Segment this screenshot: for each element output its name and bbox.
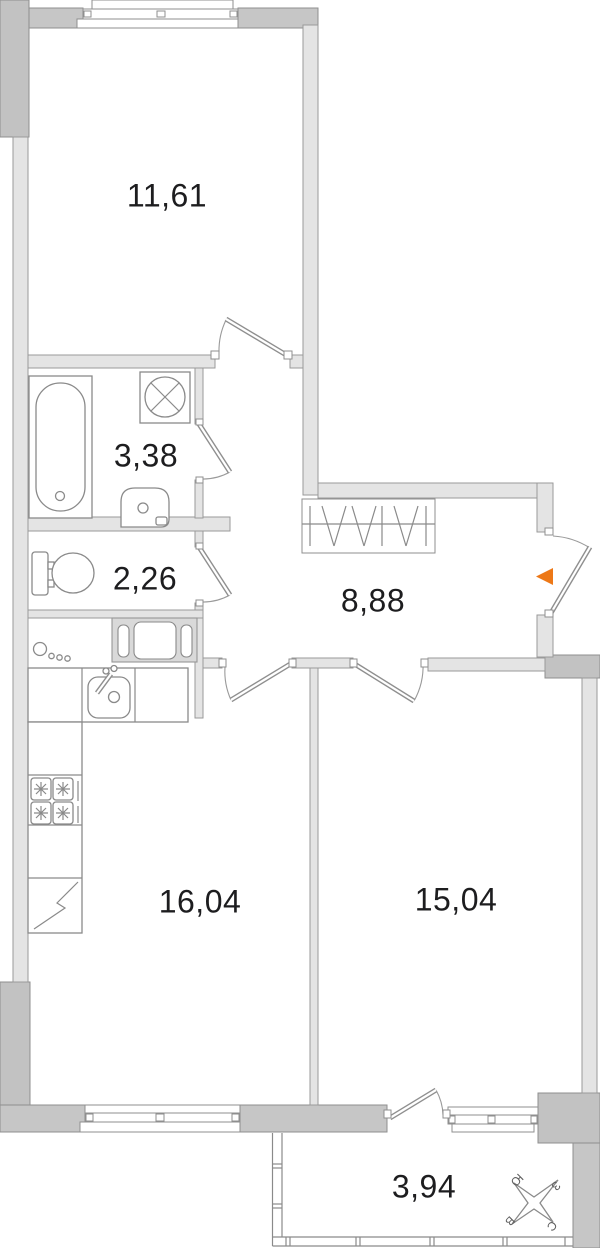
door-balcony [384,1090,450,1118]
bathroom-area-label: 3,38 [114,438,178,475]
door-bathroom [196,419,230,483]
wall-left [13,137,28,982]
wall-corner-bottom-right [538,1093,600,1143]
wall-hallway-top [318,483,537,498]
wall-entry-lower [537,615,553,657]
toilet-icon [32,552,94,595]
wall-bath-right-a [195,368,203,424]
wall-kitchen-room [310,668,318,1105]
entrance-arrow-icon [536,568,553,585]
wall-corner-entry [545,655,600,678]
wall-corner-top-left [0,0,29,137]
balcony-area-label: 3,94 [392,1169,456,1206]
door-room-11-61 [211,319,292,359]
room-11-61-area-label: 11,61 [127,178,207,215]
gas-meter-icon [34,643,71,662]
wall-right-lower [582,678,597,1093]
room-15-04-area-label: 15,04 [415,882,498,919]
window-kitchen [80,1105,240,1132]
door-kitchen [219,659,296,700]
wall-between-doors [292,658,353,668]
walls [0,0,600,1248]
wall-bottom-center [240,1105,387,1132]
wall-right-upper [303,25,318,495]
wall-room-top [428,658,545,671]
door-wc [196,543,230,606]
hallway-area-label: 8,88 [341,583,405,620]
wall-wc-bottom [28,610,203,618]
floor-plan: 11,61 3,38 2,26 8,88 16,04 15,04 3,94 Ю … [0,0,600,1248]
wall-balcony-right [573,1143,600,1248]
wc-area-label: 2,26 [113,561,177,598]
wall-top-left-seg [29,8,83,28]
wall-bath-top-left [28,355,215,368]
window-room [448,1107,538,1132]
washing-machine-icon [140,372,190,423]
kitchen-area-label: 16,04 [159,884,242,921]
wall-entry-upper [537,483,553,532]
wardrobe [302,499,435,553]
wall-bath-right-b [195,480,203,518]
bathtub-icon [29,376,92,518]
vent-shaft [112,618,197,662]
wall-bottom-kitchen-left [0,1105,85,1132]
floor-plan-drawing [0,0,600,1248]
wash-basin-icon [121,488,169,527]
window-top [77,0,238,28]
door-room-15-04 [350,659,428,701]
